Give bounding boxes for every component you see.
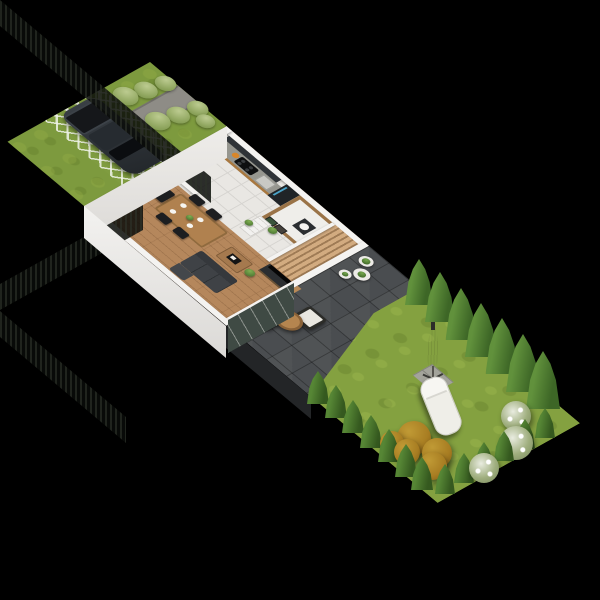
isometric-plan	[8, 62, 581, 503]
white-planter	[336, 268, 354, 281]
plate	[179, 202, 188, 208]
scene-background	[0, 0, 600, 600]
parasol-tip	[431, 322, 435, 330]
table-centerpiece	[184, 214, 195, 221]
garden-fence-front	[0, 311, 127, 444]
white-planter	[355, 254, 376, 269]
potted-plant	[242, 267, 257, 278]
plate	[168, 208, 177, 214]
parasol-canopy	[427, 328, 438, 368]
plate	[185, 222, 194, 228]
bush-white-icon	[469, 453, 499, 483]
plate	[196, 217, 205, 223]
white-planter	[350, 266, 374, 283]
